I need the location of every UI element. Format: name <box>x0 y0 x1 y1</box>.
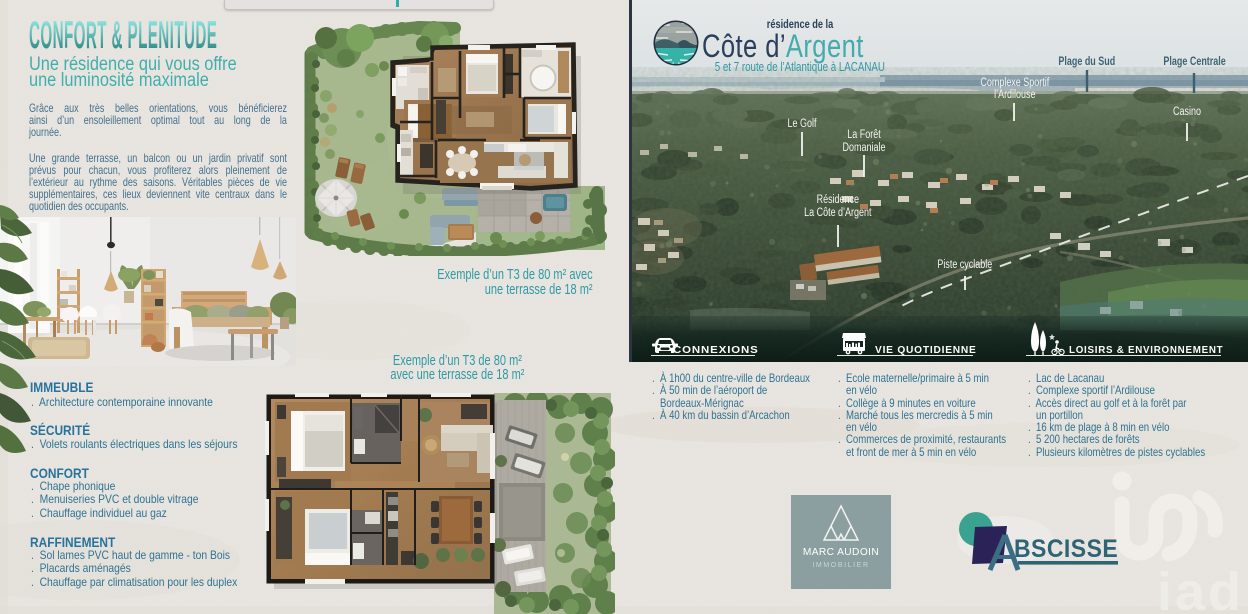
svg-text:BSCISSE: BSCISSE <box>1014 535 1118 563</box>
svg-text:IMMOBILIER: IMMOBILIER <box>812 562 869 569</box>
svg-text:iad: iad <box>1157 562 1244 614</box>
svg-text:MARC AUDOIN: MARC AUDOIN <box>803 547 879 558</box>
